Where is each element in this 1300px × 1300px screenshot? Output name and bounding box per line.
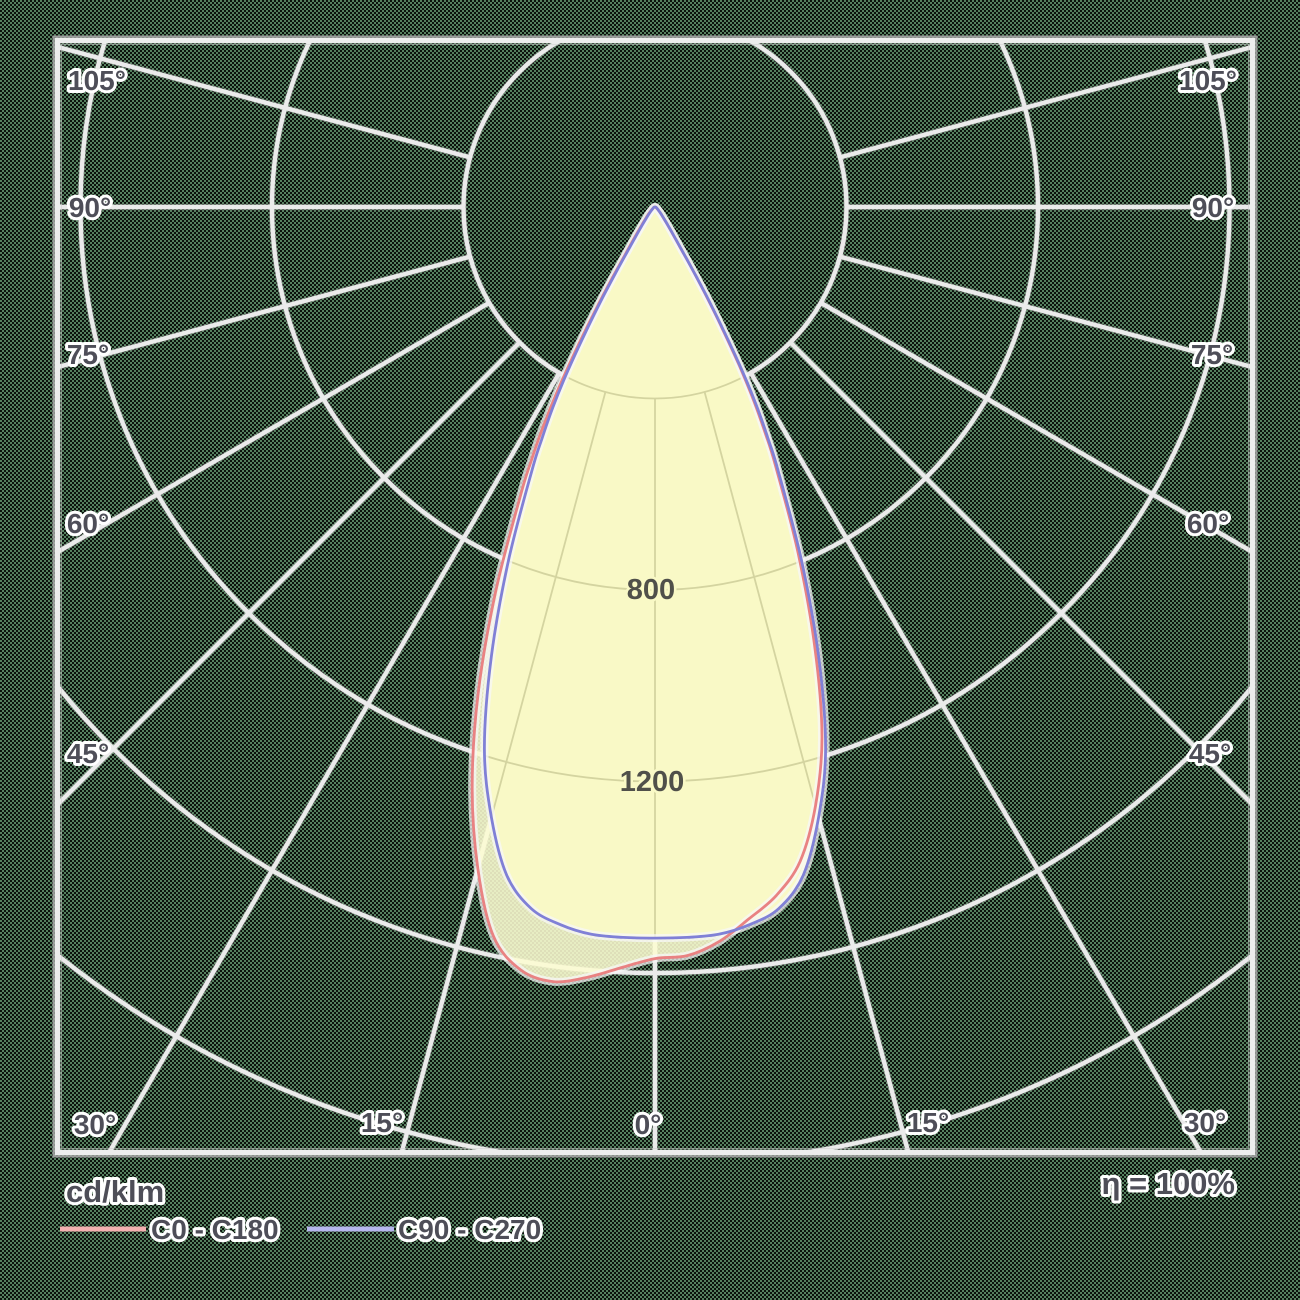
legend-label-c90-c270: C90 - C270 xyxy=(398,1214,541,1245)
angle-label: 30° xyxy=(74,1109,116,1140)
grid-spoke xyxy=(0,257,470,505)
grid-spoke xyxy=(840,257,1300,505)
angle-label: 30° xyxy=(1184,1107,1226,1138)
angle-label: 90° xyxy=(1192,192,1234,223)
grid-spoke xyxy=(821,303,1300,782)
angle-label: 15° xyxy=(361,1107,403,1138)
grid-spoke xyxy=(790,342,1300,1020)
grid-spoke xyxy=(0,257,470,505)
angle-label: 105° xyxy=(1179,65,1237,96)
grid-spoke xyxy=(821,303,1300,782)
ring-value-label: 1200 xyxy=(620,766,685,798)
angle-label: 60° xyxy=(1187,508,1229,539)
grid-spoke xyxy=(790,342,1300,1020)
angle-label: 60° xyxy=(67,508,109,539)
angle-label: 45° xyxy=(67,738,109,769)
angle-label: 0° xyxy=(635,1109,662,1140)
grid-spoke xyxy=(840,257,1300,505)
angle-label: 75° xyxy=(67,339,109,370)
angle-label: 90° xyxy=(69,192,111,223)
grid-spoke xyxy=(821,303,1300,782)
efficiency-label: η = 100% xyxy=(1101,1166,1235,1201)
angle-label: 45° xyxy=(1189,738,1231,769)
photometric-polar-diagram: 105°90°75°60°45°30°15°0°15°30°45°60°75°9… xyxy=(0,0,1300,1300)
angle-label: 105° xyxy=(68,65,126,96)
angle-label: 15° xyxy=(907,1107,949,1138)
grid-spoke xyxy=(0,342,520,1020)
angle-label: 75° xyxy=(1191,339,1233,370)
photometric-diagram-page: 105°90°75°60°45°30°15°0°15°30°45°60°75°9… xyxy=(0,0,1300,1300)
grid-spoke xyxy=(0,342,520,1020)
grid-spoke xyxy=(0,342,520,1020)
legend-label-c0-c180: C0 - C180 xyxy=(151,1214,279,1245)
ring-value-label: 800 xyxy=(627,574,675,606)
grid-spoke xyxy=(840,257,1300,505)
legend: C0 - C180 C90 - C270 xyxy=(60,1214,541,1245)
grid-spoke xyxy=(0,257,470,505)
unit-label: cd/klm xyxy=(66,1174,164,1209)
grid-spoke xyxy=(790,342,1300,1020)
